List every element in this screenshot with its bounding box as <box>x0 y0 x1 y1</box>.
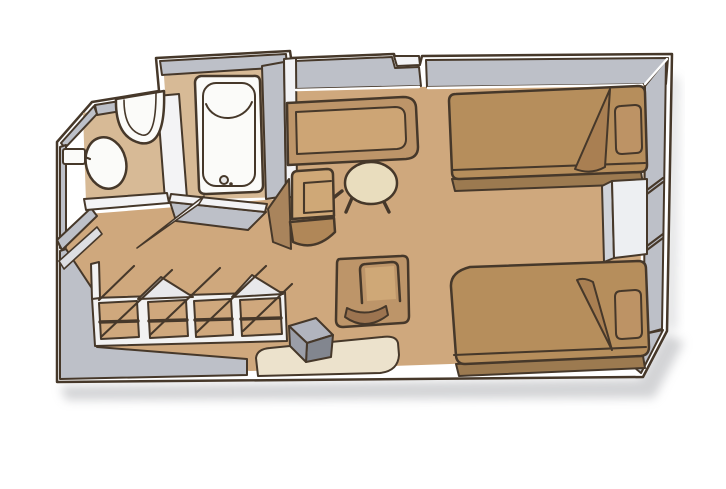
bathtub-drain <box>220 176 228 184</box>
toilet-tank <box>63 149 85 164</box>
twin-bed-bottom <box>451 261 649 376</box>
wall-top-bedroom <box>426 58 668 87</box>
stateroom-floor-plan <box>0 0 726 489</box>
wall-step-face <box>394 56 420 66</box>
bathtub-outer <box>195 76 263 194</box>
hanging-rod-4 <box>241 318 281 319</box>
bathtub-drain-dot <box>229 182 233 186</box>
tub-deck <box>262 62 286 199</box>
armchair-front-seat <box>365 266 396 301</box>
pillow-top <box>615 105 642 154</box>
hanging-rod-2 <box>149 320 187 321</box>
nightstand-front <box>612 179 647 258</box>
bathtub <box>195 76 263 194</box>
closet-left-post <box>91 262 100 299</box>
hanging-rod-1 <box>100 321 138 322</box>
table-top <box>345 162 397 204</box>
twin-bed-top <box>449 86 647 191</box>
hanging-rod-3 <box>195 319 232 320</box>
sofa-seat <box>296 107 406 154</box>
nightstand <box>602 179 647 262</box>
armchair-front <box>336 256 409 327</box>
pillow-bottom <box>615 290 642 339</box>
floor-plan-canvas <box>0 0 726 489</box>
sofa <box>287 97 418 165</box>
